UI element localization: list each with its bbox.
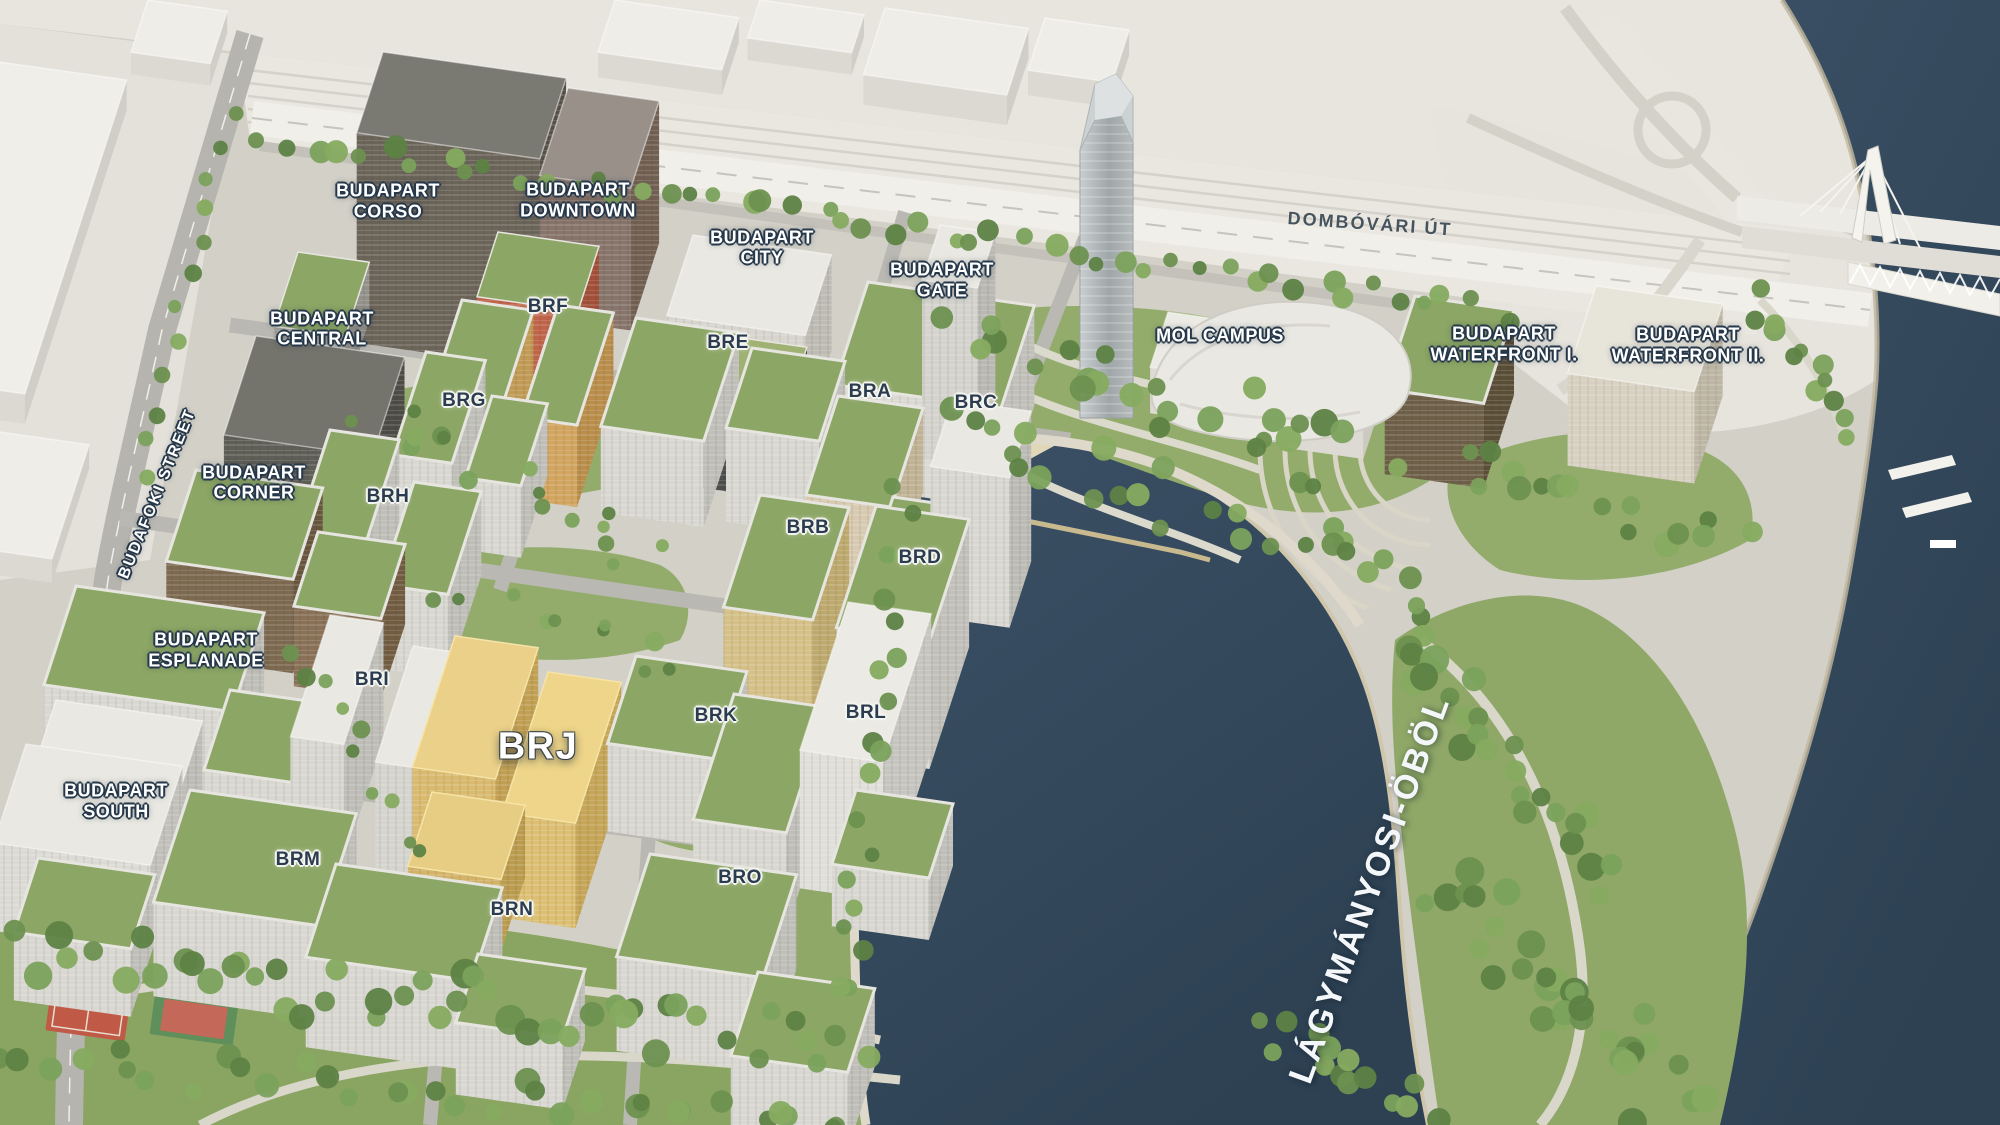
map-label-budapart-corso[interactable]: BUDAPART CORSO [336, 181, 440, 222]
map-label-bra[interactable]: BRA [849, 381, 892, 403]
map-label-brd[interactable]: BRD [899, 547, 942, 569]
map-label-bre[interactable]: BRE [707, 332, 749, 354]
map-label-brg[interactable]: BRG [442, 390, 486, 412]
map-label-mol-campus[interactable]: MOL CAMPUS [1156, 326, 1284, 347]
masterplan-map: BUDAPART CORSOBUDAPART DOWNTOWNBUDAPART … [0, 0, 2000, 1125]
map-label-brb[interactable]: BRB [787, 517, 830, 539]
map-label-brk[interactable]: BRK [695, 705, 738, 727]
map-label-brn[interactable]: BRN [491, 899, 534, 921]
map-label-budapart-central[interactable]: BUDAPART CENTRAL [270, 308, 374, 349]
map-label-brc[interactable]: BRC [955, 392, 998, 414]
map-label-bri[interactable]: BRI [355, 669, 389, 691]
mol-campus-tower [1080, 74, 1133, 418]
map-label-brj[interactable]: BRJ [498, 725, 579, 768]
map-label-budapart-esplanade[interactable]: BUDAPART ESPLANADE [148, 630, 264, 671]
building-block [832, 790, 953, 940]
map-label-brf[interactable]: BRF [528, 296, 569, 318]
map-label-budapart-city[interactable]: BUDAPART CITY [710, 227, 814, 268]
map-label-budapart-waterfront-ii[interactable]: BUDAPART WATERFRONT II. [1612, 325, 1765, 366]
map-label-bro[interactable]: BRO [718, 867, 762, 889]
map-label-brh[interactable]: BRH [367, 486, 410, 508]
map-scene [0, 0, 2000, 1125]
map-label-budapart-downtown[interactable]: BUDAPART DOWNTOWN [520, 180, 636, 221]
map-label-brl[interactable]: BRL [846, 702, 887, 724]
building-block [131, 0, 227, 86]
map-label-budapart-corner[interactable]: BUDAPART CORNER [202, 462, 306, 503]
map-label-brm[interactable]: BRM [276, 849, 321, 871]
map-label-budapart-gate[interactable]: BUDAPART GATE [890, 260, 994, 301]
building-waterfront-ii [1568, 286, 1723, 484]
map-label-budapart-waterfront-i[interactable]: BUDAPART WATERFRONT I. [1430, 324, 1577, 365]
building-block [863, 8, 1028, 125]
map-label-budapart-south[interactable]: BUDAPART SOUTH [64, 780, 168, 821]
